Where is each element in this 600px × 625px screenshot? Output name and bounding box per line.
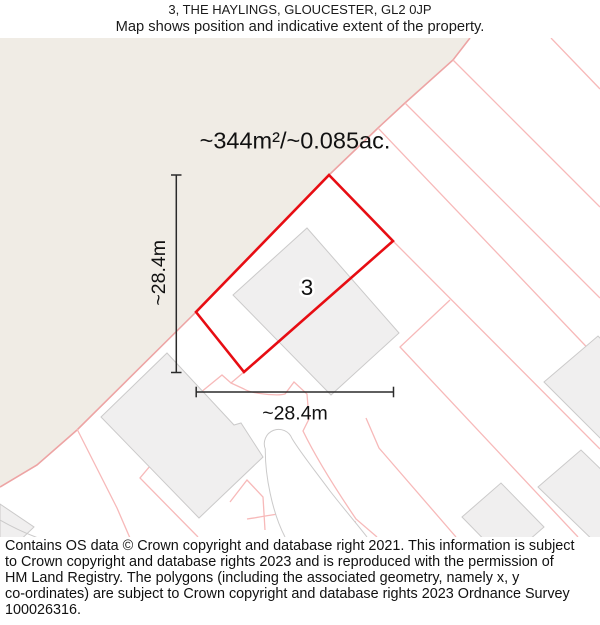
svg-text:~28.4m: ~28.4m <box>148 240 170 306</box>
svg-text:3: 3 <box>301 275 314 300</box>
svg-text:~344m²/~0.085ac.: ~344m²/~0.085ac. <box>200 128 391 154</box>
svg-text:~28.4m: ~28.4m <box>262 403 328 425</box>
